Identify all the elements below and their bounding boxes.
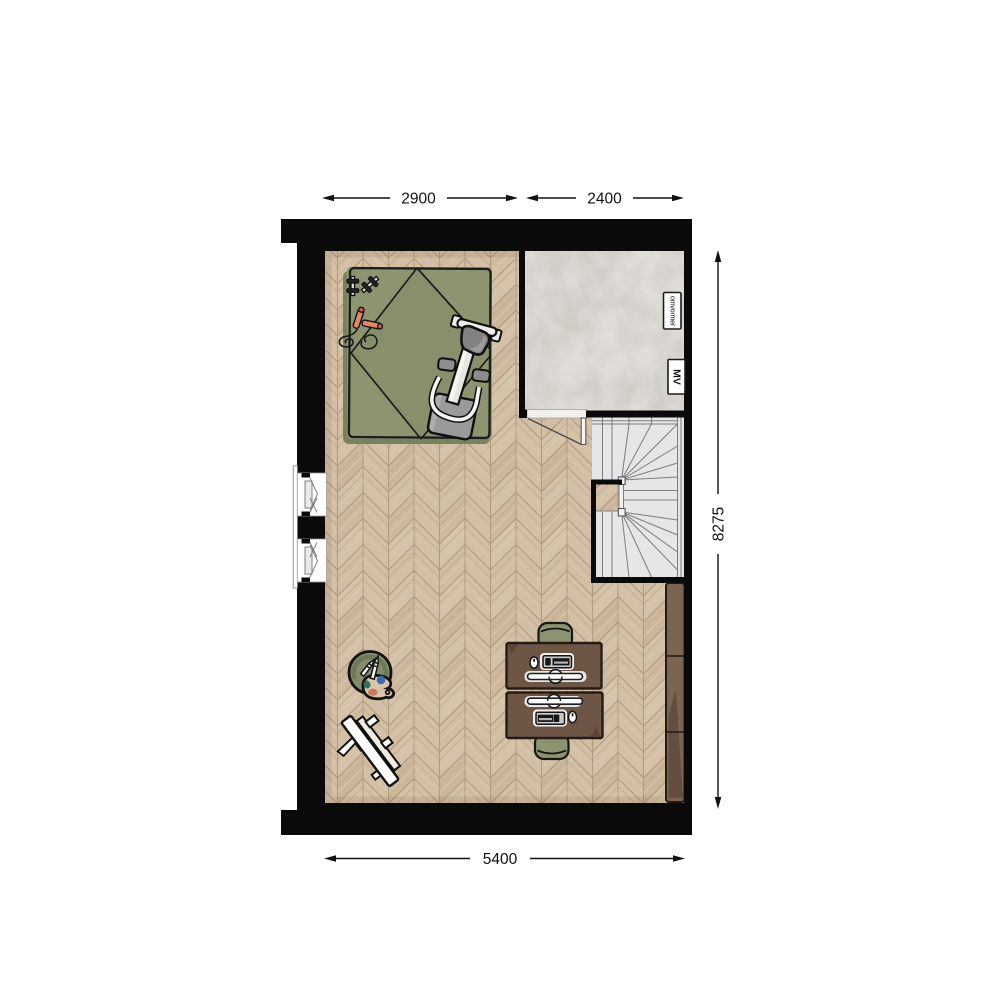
svg-text:MV: MV bbox=[671, 369, 683, 385]
svg-text:2900: 2900 bbox=[401, 191, 436, 208]
svg-text:2400: 2400 bbox=[587, 191, 622, 208]
svg-text:5400: 5400 bbox=[483, 851, 518, 868]
svg-text:omvormer: omvormer bbox=[669, 296, 676, 327]
svg-text:8275: 8275 bbox=[711, 507, 728, 541]
